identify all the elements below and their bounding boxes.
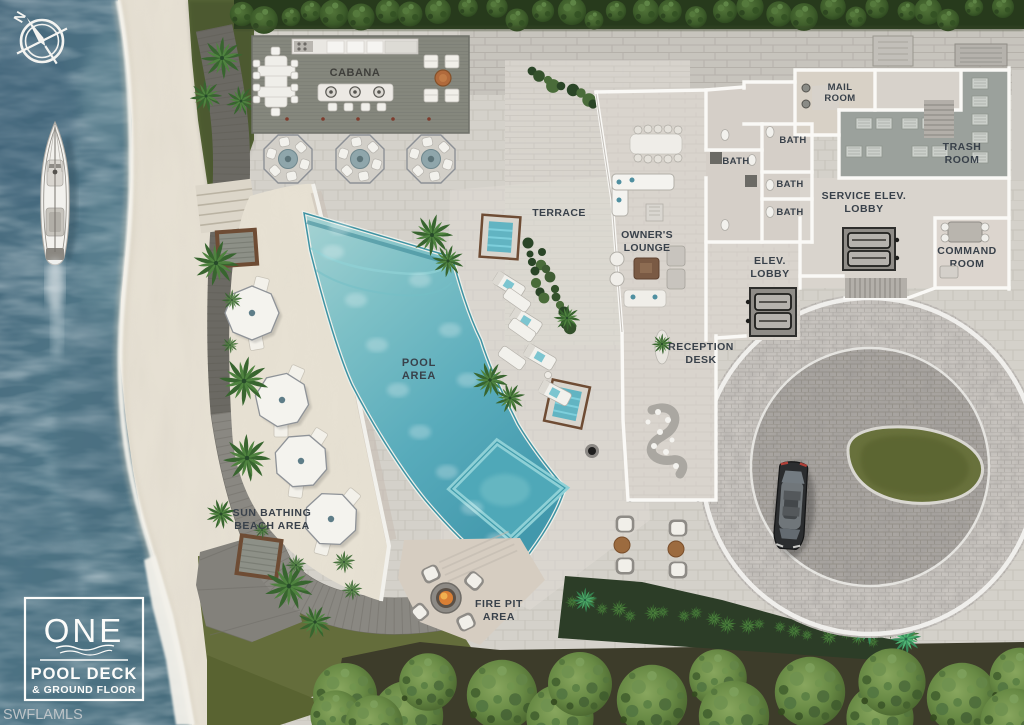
svg-text:AREA: AREA [483, 611, 515, 623]
svg-text:AREA: AREA [402, 370, 436, 382]
svg-text:MAIL: MAIL [828, 82, 853, 93]
svg-text:LOUNGE: LOUNGE [624, 242, 671, 254]
svg-text:ELEV.: ELEV. [754, 255, 786, 267]
svg-text:FIRE PIT: FIRE PIT [475, 598, 523, 610]
svg-text:BEACH AREA: BEACH AREA [234, 520, 310, 532]
svg-text:LOBBY: LOBBY [750, 268, 789, 280]
svg-text:RECEPTION: RECEPTION [668, 341, 734, 353]
svg-text:ROOM: ROOM [945, 154, 980, 166]
svg-text:SWFLAMLS: SWFLAMLS [3, 707, 83, 723]
svg-text:TRASH: TRASH [943, 141, 982, 153]
svg-text:ROOM: ROOM [824, 93, 855, 104]
svg-text:POOL DECK: POOL DECK [31, 665, 138, 683]
svg-text:POOL: POOL [402, 357, 436, 369]
svg-text:TERRACE: TERRACE [532, 207, 586, 219]
svg-text:BATH: BATH [776, 207, 803, 218]
svg-text:BATH: BATH [776, 179, 803, 190]
svg-text:BATH: BATH [722, 156, 749, 167]
svg-text:DESK: DESK [685, 354, 716, 366]
svg-text:CABANA: CABANA [330, 67, 381, 79]
svg-text:ONE: ONE [44, 612, 125, 649]
svg-text:LOBBY: LOBBY [844, 203, 883, 215]
svg-text:BATH: BATH [779, 135, 806, 146]
svg-text:SERVICE ELEV.: SERVICE ELEV. [822, 190, 907, 202]
svg-text:& GROUND FLOOR: & GROUND FLOOR [32, 684, 136, 696]
svg-text:OWNER'S: OWNER'S [621, 229, 673, 241]
svg-text:SUN BATHING: SUN BATHING [233, 507, 312, 519]
svg-text:COMMAND: COMMAND [937, 245, 997, 257]
